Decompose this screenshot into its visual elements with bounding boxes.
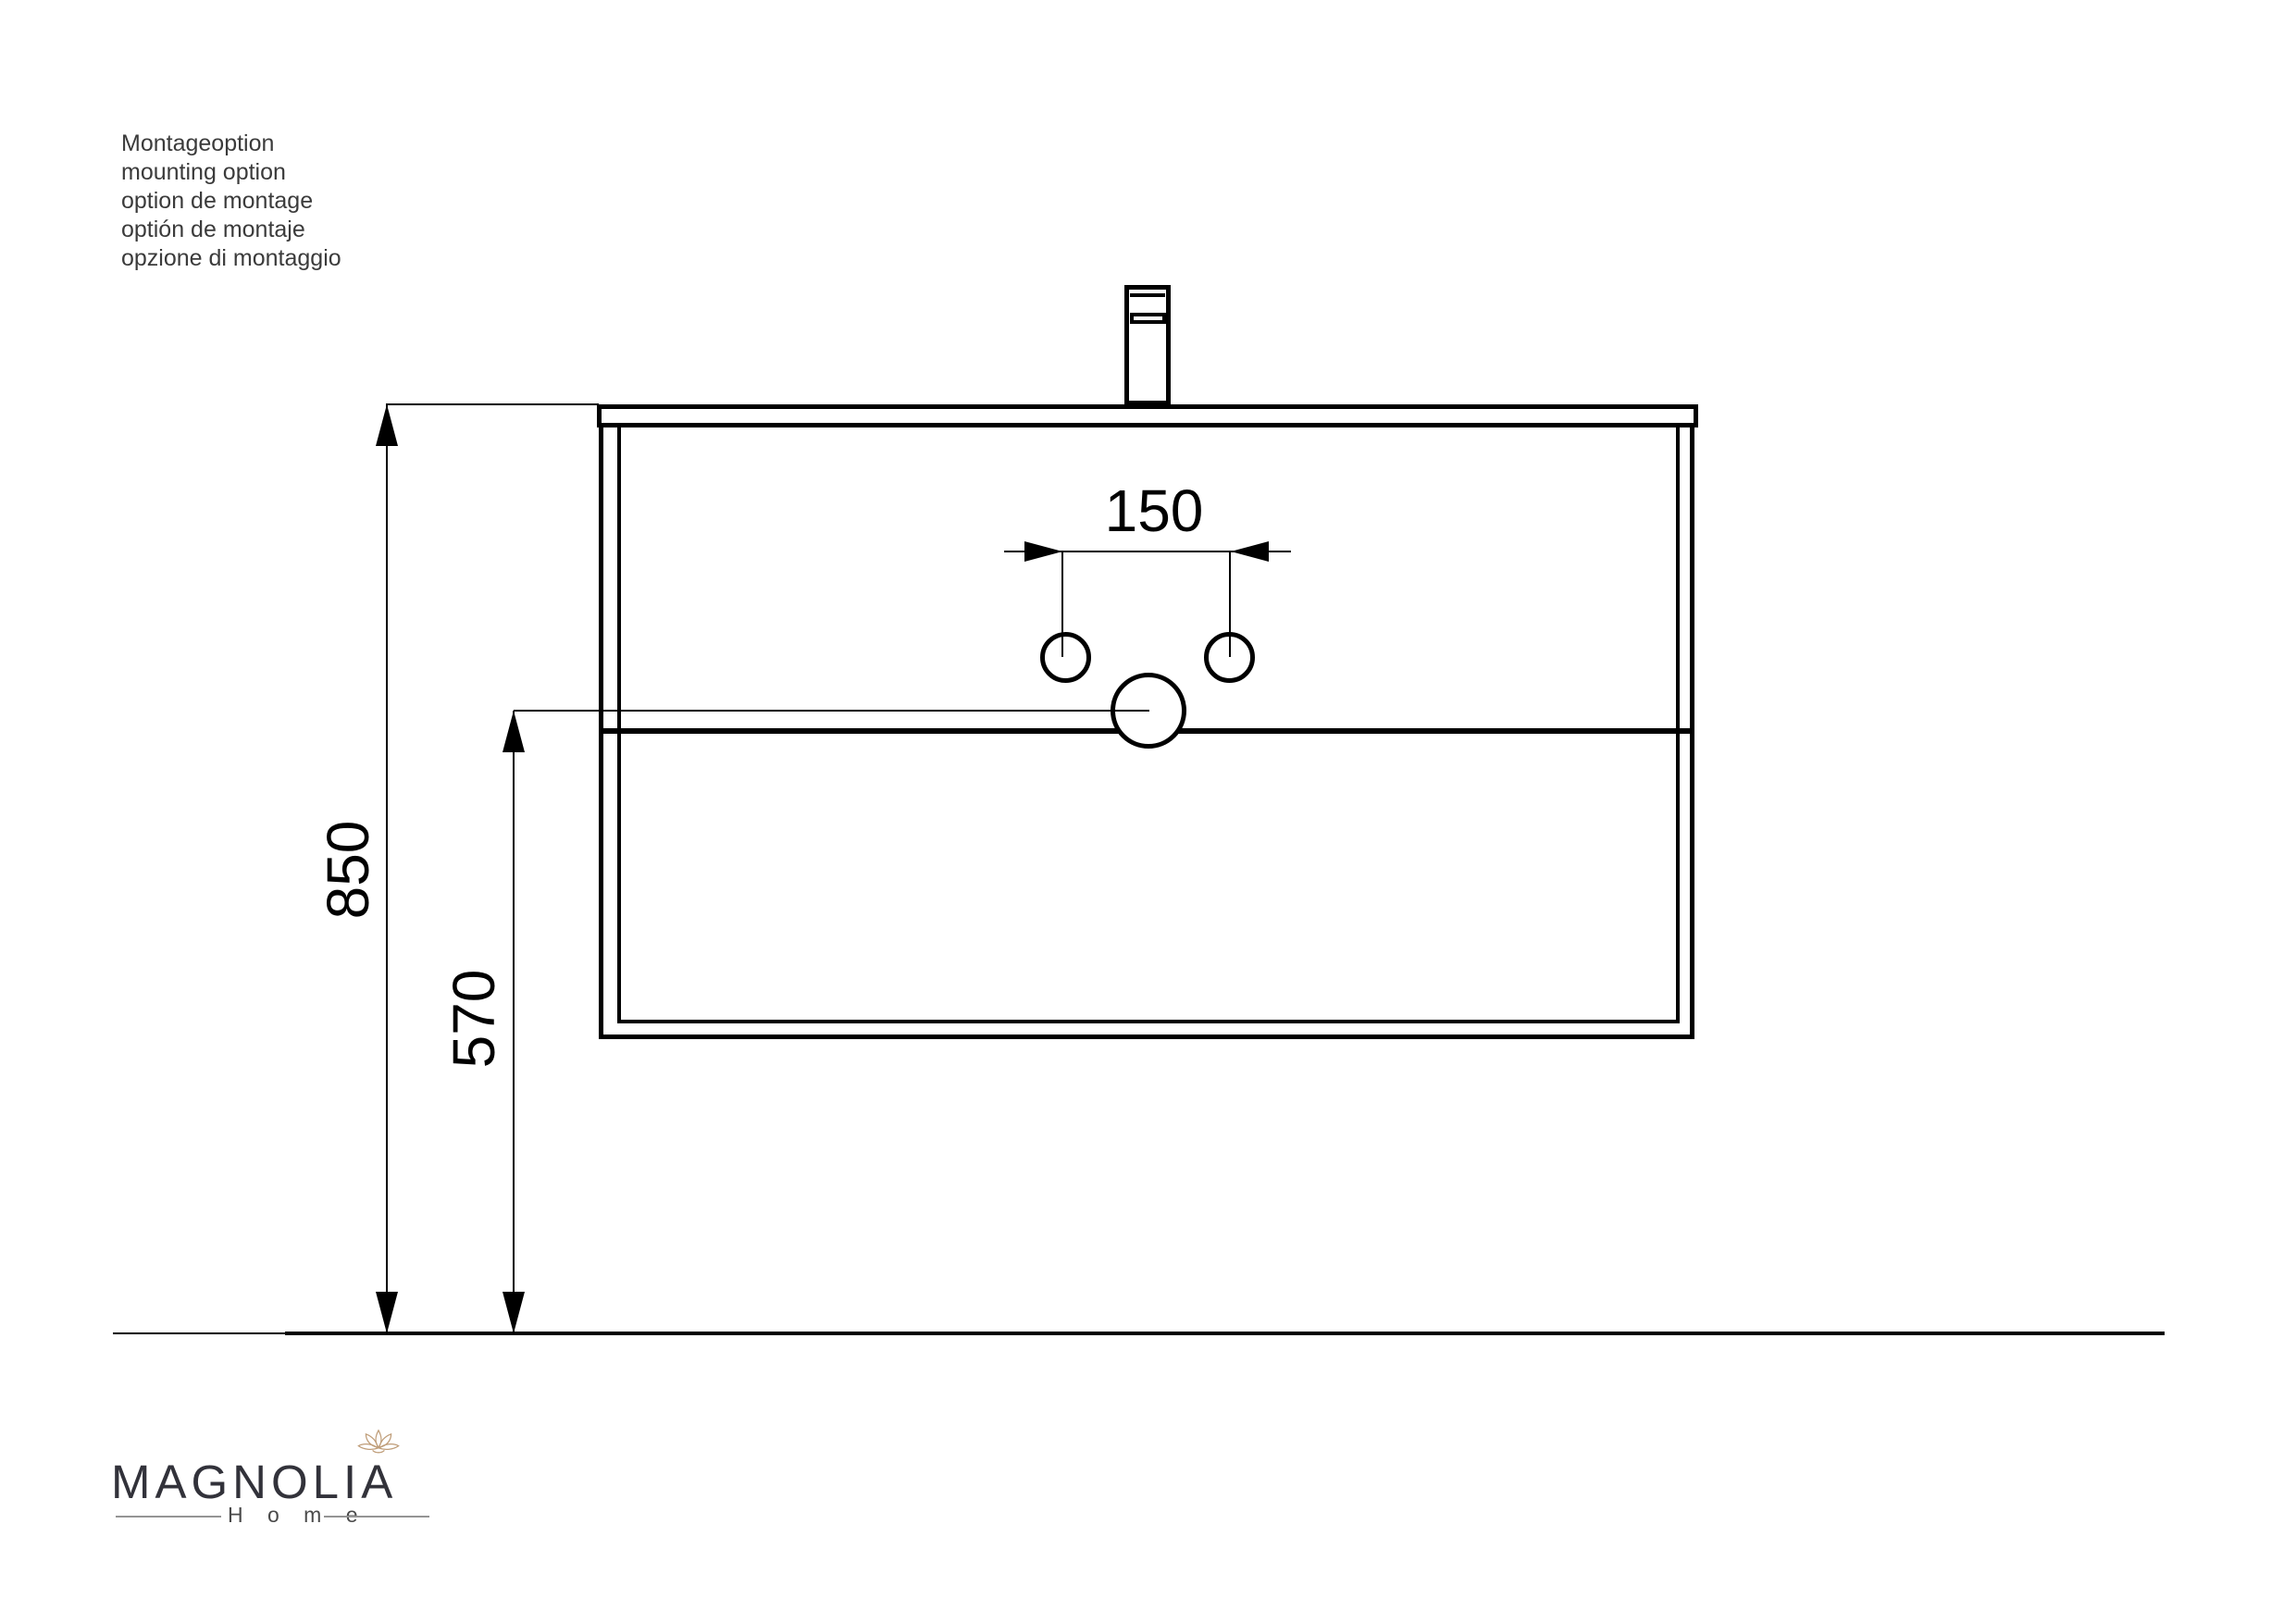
note-line-fr: option de montage xyxy=(121,187,341,216)
note-line-it: opzione di montaggio xyxy=(121,244,341,273)
floor-line xyxy=(285,1332,2165,1335)
extension-line-850-top xyxy=(386,403,599,405)
note-line-es: optión de montaje xyxy=(121,216,341,244)
faucet-hole-left xyxy=(1040,632,1091,683)
note-line-de: Montageoption xyxy=(121,130,341,158)
floor-line-thin-segment xyxy=(113,1332,287,1334)
brand-subtitle: H o m e xyxy=(228,1503,367,1527)
arrowhead-150-right xyxy=(1231,541,1269,562)
arrowhead-570-top xyxy=(503,711,525,752)
extension-line-150-right xyxy=(1229,551,1231,657)
faucet-outline xyxy=(1124,285,1171,405)
arrowhead-150-left xyxy=(1024,541,1062,562)
brand-name: MAGNOLIA xyxy=(111,1458,397,1505)
washbasin-top-outline xyxy=(597,404,1698,427)
arrowhead-570-bottom xyxy=(503,1292,525,1333)
mounting-option-notes: Montageoption mounting option option de … xyxy=(121,130,341,273)
dimension-line-850 xyxy=(386,404,388,1333)
dimension-label-570: 570 xyxy=(444,945,503,1093)
dimension-label-150: 150 xyxy=(1080,481,1228,540)
logo-rule-left xyxy=(116,1516,221,1518)
logo-rule-right xyxy=(324,1516,429,1518)
extension-line-150-left xyxy=(1061,551,1063,657)
faucet-cap-line xyxy=(1130,293,1165,297)
leader-line-570-drain xyxy=(514,710,1149,712)
mounting-drawing-page: Montageoption mounting option option de … xyxy=(0,0,2296,1623)
note-line-en: mounting option xyxy=(121,158,341,187)
arrowhead-850-bottom xyxy=(376,1292,398,1333)
faucet-spout-outline xyxy=(1130,313,1166,324)
arrowhead-850-top xyxy=(376,404,398,446)
dimension-label-850: 850 xyxy=(318,796,378,944)
dimension-line-570 xyxy=(513,711,515,1333)
